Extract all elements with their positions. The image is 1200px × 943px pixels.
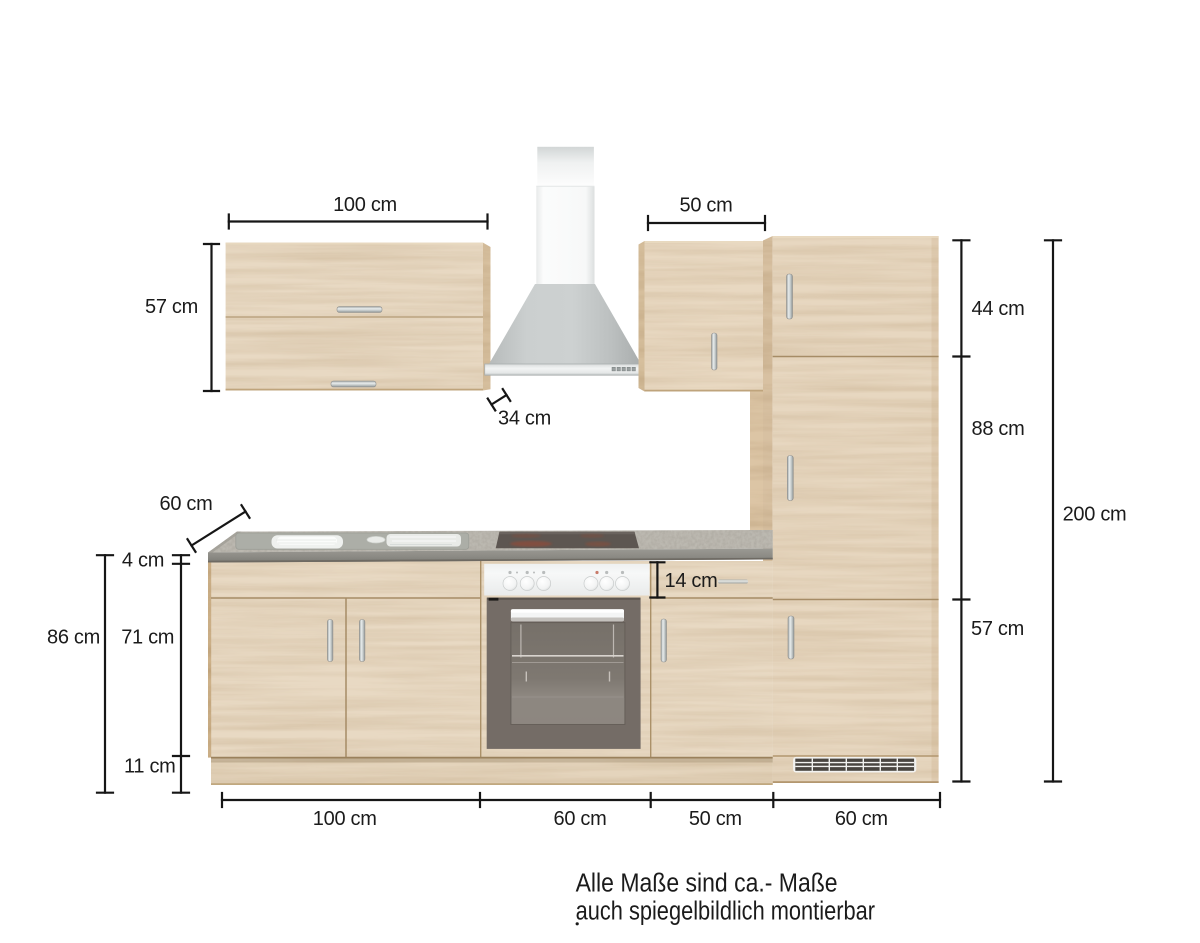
svg-text:57 cm: 57 cm bbox=[971, 618, 1024, 640]
svg-text:Alle Maße sind ca.- Maße: Alle Maße sind ca.- Maße bbox=[576, 870, 838, 898]
svg-text:14 cm: 14 cm bbox=[665, 570, 718, 592]
svg-text:200 cm: 200 cm bbox=[1063, 504, 1127, 526]
svg-text:88 cm: 88 cm bbox=[972, 418, 1025, 440]
svg-text:57 cm: 57 cm bbox=[145, 296, 198, 318]
svg-text:86 cm: 86 cm bbox=[47, 627, 100, 649]
svg-text:60 cm: 60 cm bbox=[835, 808, 888, 830]
svg-text:11 cm: 11 cm bbox=[124, 755, 175, 777]
svg-text:4 cm: 4 cm bbox=[122, 550, 164, 572]
svg-text:auch spiegelbildlich montierba: auch spiegelbildlich montierbar bbox=[576, 898, 876, 926]
svg-text:50 cm: 50 cm bbox=[680, 195, 733, 217]
svg-text:100 cm: 100 cm bbox=[313, 808, 377, 830]
svg-text:34 cm: 34 cm bbox=[498, 408, 551, 430]
svg-text:71 cm: 71 cm bbox=[121, 627, 174, 649]
svg-text:60 cm: 60 cm bbox=[554, 808, 607, 830]
svg-text:100 cm: 100 cm bbox=[333, 194, 397, 216]
svg-text:60 cm: 60 cm bbox=[160, 493, 213, 515]
svg-text:44 cm: 44 cm bbox=[972, 298, 1025, 320]
svg-text:50 cm: 50 cm bbox=[689, 808, 742, 830]
